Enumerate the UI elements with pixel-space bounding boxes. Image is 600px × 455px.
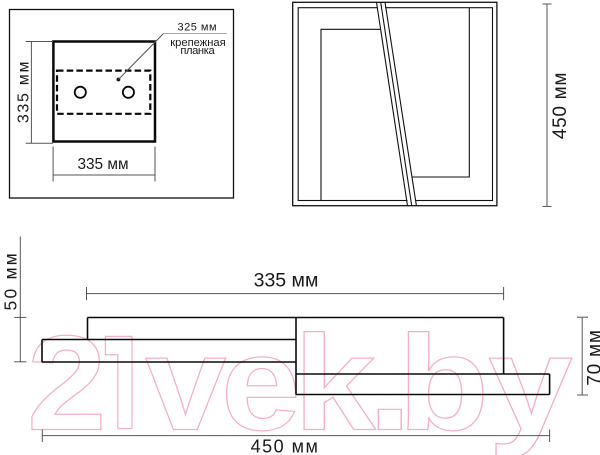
svg-text:450 мм: 450 мм <box>251 437 320 455</box>
svg-text:v: v <box>145 308 226 455</box>
svg-text:50 мм: 50 мм <box>1 251 21 310</box>
svg-text:70 мм: 70 мм <box>585 329 600 386</box>
svg-text:325 мм: 325 мм <box>178 21 218 33</box>
svg-text:k: k <box>294 308 377 455</box>
svg-text:335 мм: 335 мм <box>254 270 319 292</box>
svg-text:450 мм: 450 мм <box>550 72 571 139</box>
svg-text:e: e <box>221 308 301 455</box>
svg-text:y: y <box>488 308 572 455</box>
svg-text:b: b <box>398 308 489 455</box>
svg-text:335 мм: 335 мм <box>16 60 33 123</box>
svg-text:планка: планка <box>180 45 215 57</box>
svg-text:335 мм: 335 мм <box>77 156 128 173</box>
svg-text:2: 2 <box>27 308 107 455</box>
